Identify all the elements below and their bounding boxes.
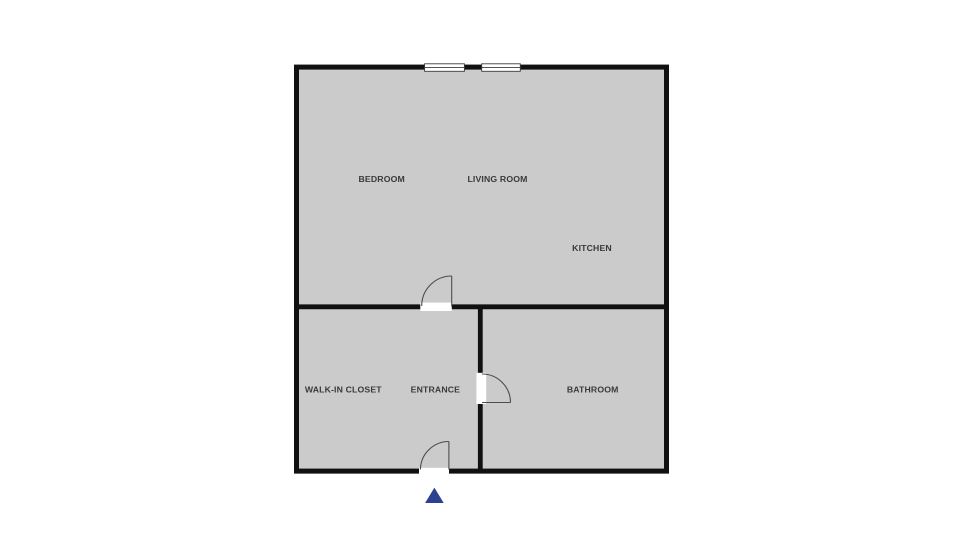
svg-text:ENTRANCE: ENTRANCE [411,384,461,394]
svg-text:BATHROOM: BATHROOM [567,384,619,394]
svg-text:KITCHEN: KITCHEN [572,243,612,253]
svg-text:WALK-IN CLOSET: WALK-IN CLOSET [305,384,382,394]
svg-text:BEDROOM: BEDROOM [358,174,404,184]
svg-text:LIVING ROOM: LIVING ROOM [467,174,527,184]
